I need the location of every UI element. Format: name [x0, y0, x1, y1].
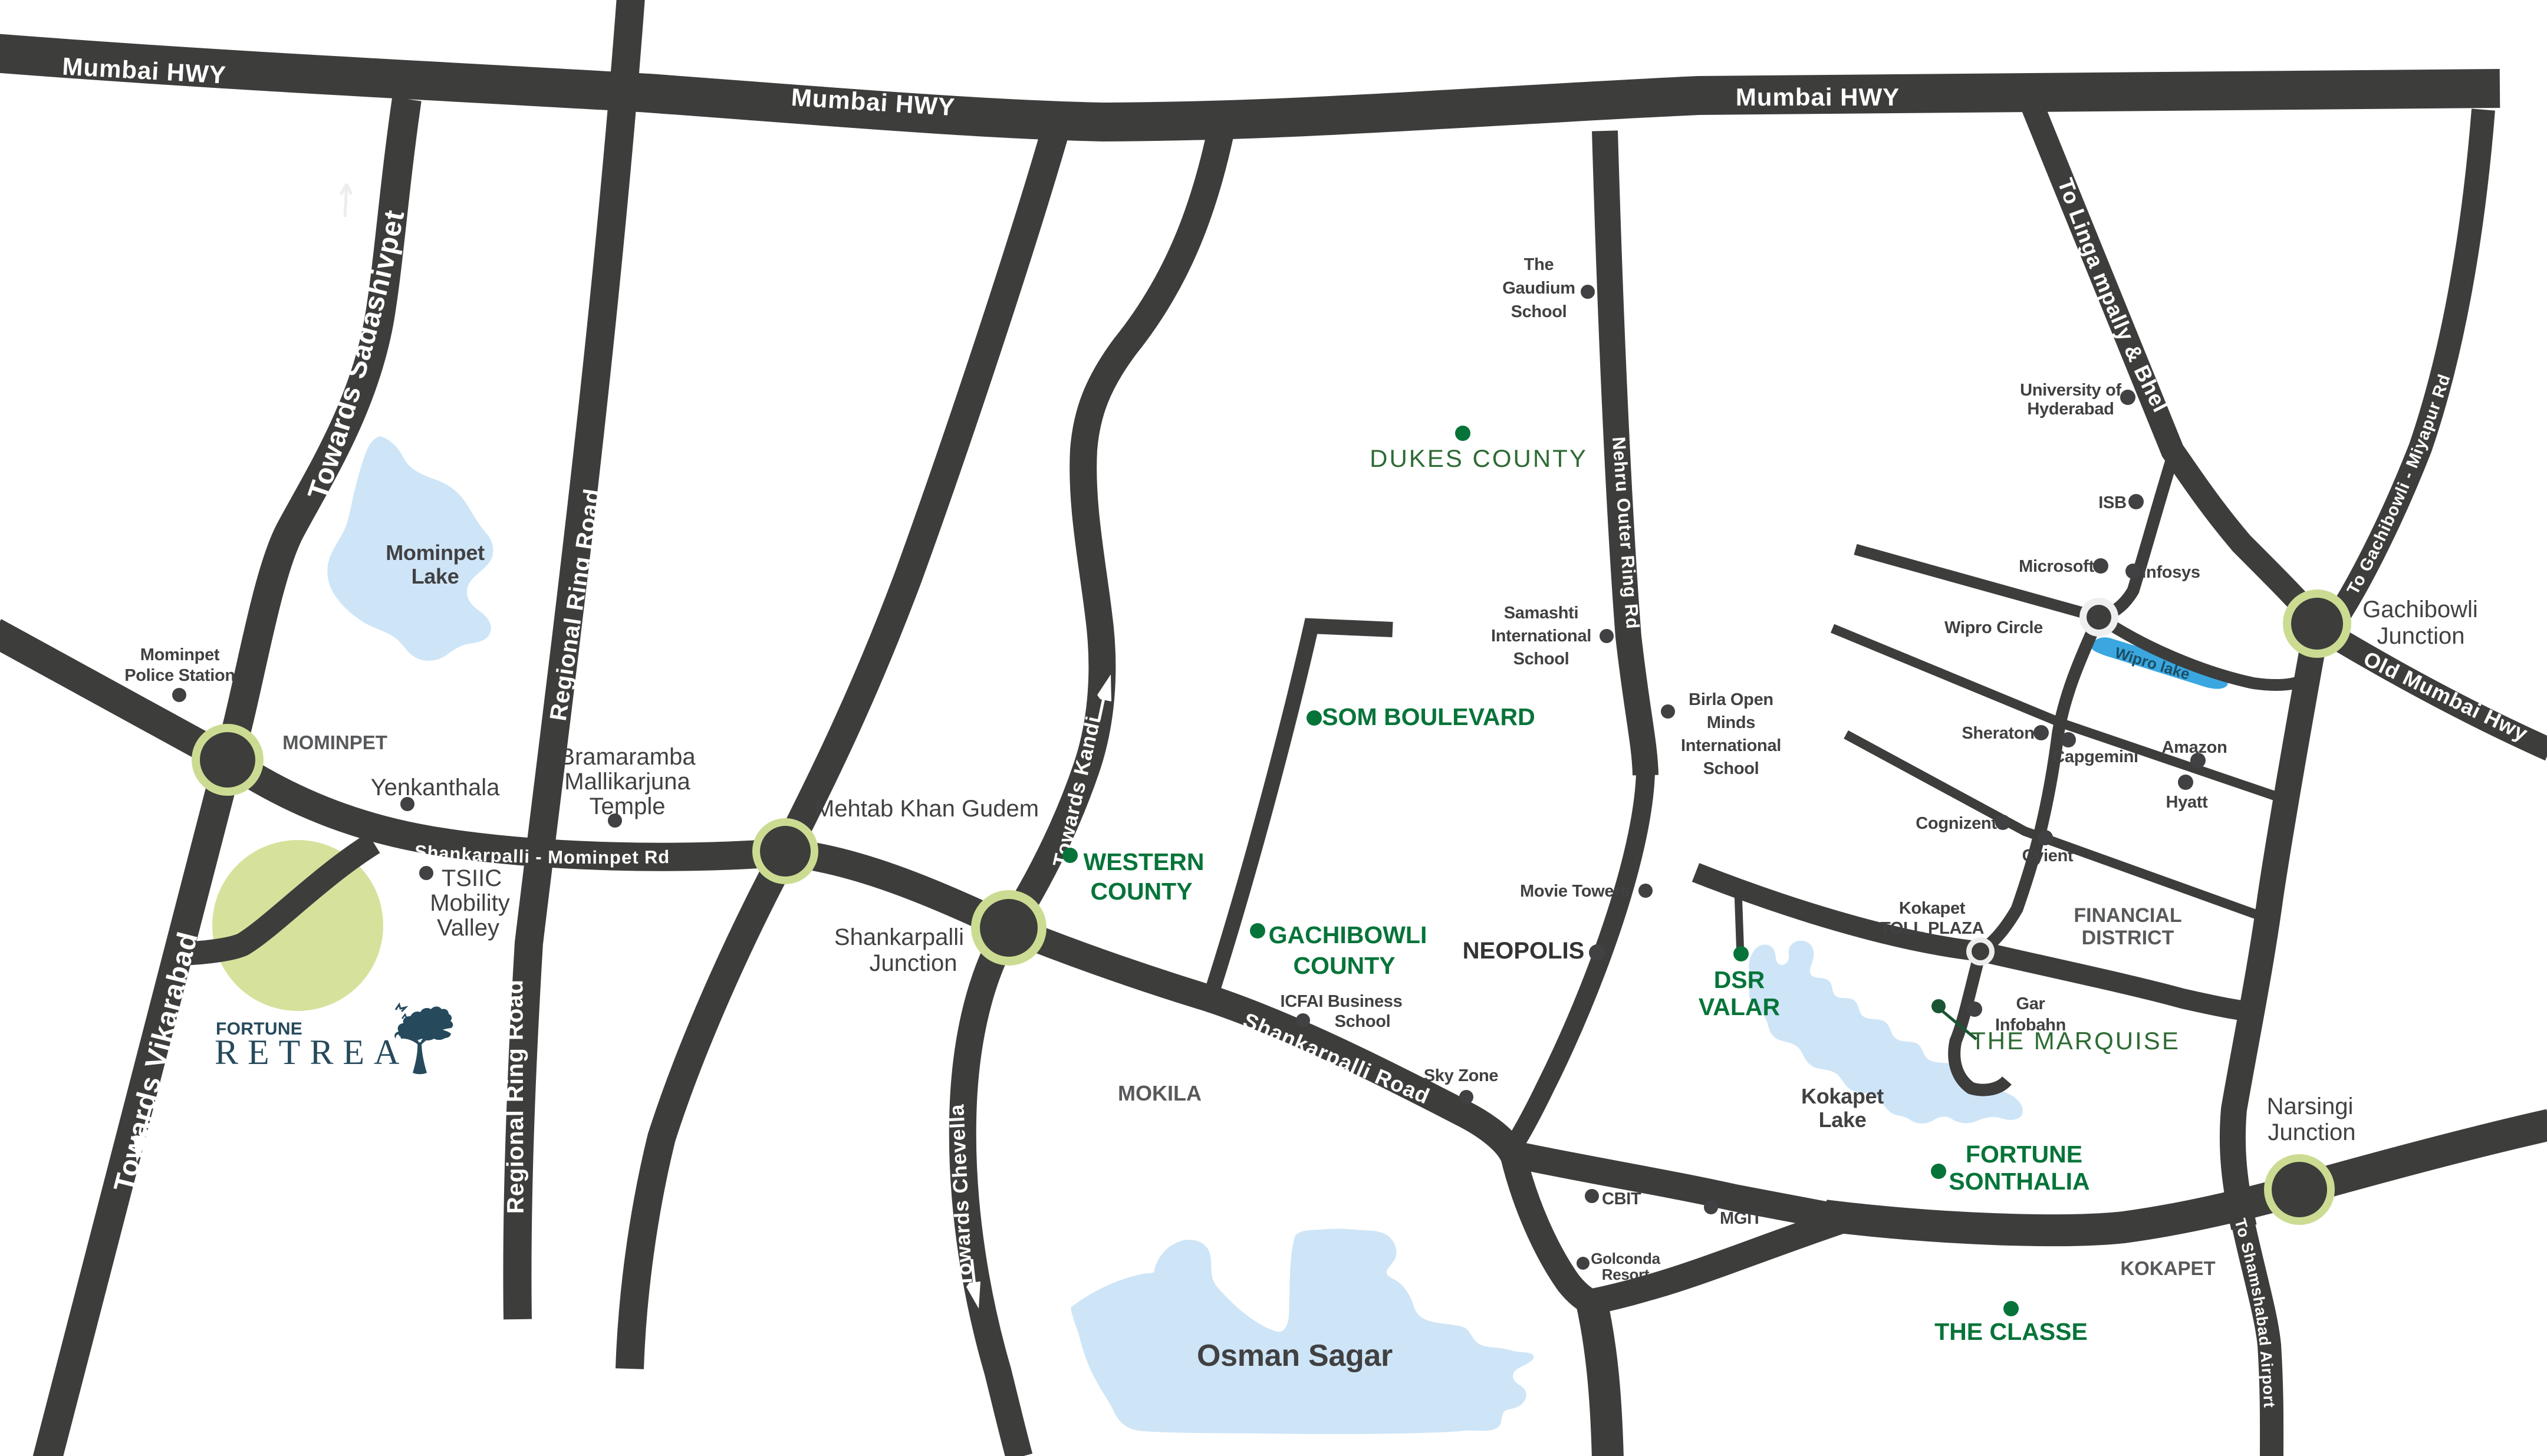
svg-text:Infosys: Infosys: [2141, 563, 2200, 582]
svg-text:TSIIC: TSIIC: [442, 865, 502, 891]
svg-text:Sky Zone: Sky Zone: [1424, 1066, 1499, 1085]
svg-text:MGIT: MGIT: [1720, 1209, 1762, 1228]
svg-text:GACHIBOWLI: GACHIBOWLI: [1269, 921, 1427, 948]
svg-text:Junction: Junction: [2268, 1119, 2356, 1145]
svg-text:FORTUNE: FORTUNE: [1966, 1141, 2082, 1168]
svg-text:COUNTY: COUNTY: [1090, 878, 1192, 905]
svg-text:Kokapet: Kokapet: [1899, 899, 1966, 918]
svg-text:Police Station: Police Station: [124, 666, 235, 685]
svg-text:Yenkanthala: Yenkanthala: [371, 775, 500, 801]
svg-text:School: School: [1513, 650, 1569, 668]
svg-text:Junction: Junction: [2377, 623, 2465, 649]
svg-text:Amazon: Amazon: [2162, 738, 2227, 757]
svg-text:Movie Towers: Movie Towers: [1520, 882, 1630, 901]
svg-text:Lake: Lake: [412, 564, 459, 588]
svg-text:University of: University of: [2020, 381, 2121, 400]
svg-text:School: School: [1511, 302, 1567, 321]
svg-text:VALAR: VALAR: [1699, 993, 1780, 1020]
svg-text:Mobility: Mobility: [430, 890, 510, 916]
svg-text:SOM BOULEVARD: SOM BOULEVARD: [1322, 703, 1535, 730]
svg-text:Valley: Valley: [437, 915, 499, 941]
svg-text:International: International: [1491, 627, 1591, 645]
svg-text:Microsoft: Microsoft: [2019, 557, 2094, 576]
svg-text:NEOPOLIS: NEOPOLIS: [1463, 938, 1585, 964]
svg-text:Lake: Lake: [1819, 1108, 1867, 1132]
svg-text:Osman Sagar: Osman Sagar: [1197, 1339, 1393, 1373]
svg-text:ICFAI Business: ICFAI Business: [1281, 992, 1403, 1011]
svg-text:Bramaramba: Bramaramba: [559, 744, 696, 770]
svg-text:DSR: DSR: [1714, 966, 1765, 993]
svg-text:Capgemini: Capgemini: [2052, 747, 2138, 766]
svg-text:Birla Open: Birla Open: [1689, 690, 1773, 709]
svg-text:DISTRICT: DISTRICT: [2082, 927, 2174, 949]
svg-text:Samashti: Samashti: [1504, 604, 1579, 622]
svg-text:Minds: Minds: [1707, 713, 1755, 732]
svg-text:SONTHALIA: SONTHALIA: [1949, 1168, 2089, 1195]
svg-text:Golconda: Golconda: [1591, 1250, 1660, 1267]
svg-text:Cyient: Cyient: [2022, 846, 2074, 865]
svg-text:Gaudium: Gaudium: [1502, 279, 1575, 298]
svg-text:THE MARQUISE: THE MARQUISE: [1970, 1027, 2180, 1055]
svg-text:FINANCIAL: FINANCIAL: [2074, 904, 2181, 927]
svg-text:Hyatt: Hyatt: [2166, 793, 2208, 812]
svg-text:School: School: [1703, 759, 1759, 778]
svg-text:MOKILA: MOKILA: [1118, 1081, 1202, 1105]
svg-text:The: The: [1524, 255, 1554, 274]
svg-text:Mallikarjuna: Mallikarjuna: [564, 769, 690, 795]
svg-text:Gar: Gar: [2016, 994, 2045, 1013]
svg-text:Junction: Junction: [870, 950, 957, 976]
svg-text:THE CLASSE: THE CLASSE: [1934, 1318, 2088, 1345]
svg-text:DUKES COUNTY: DUKES COUNTY: [1370, 444, 1588, 472]
svg-text:Narsingi: Narsingi: [2267, 1093, 2354, 1119]
svg-text:Sheraton: Sheraton: [1962, 724, 2034, 743]
svg-text:CBIT: CBIT: [1602, 1190, 1641, 1208]
svg-text:Wipro Circle: Wipro Circle: [1944, 618, 2043, 637]
svg-text:WESTERN: WESTERN: [1084, 848, 1205, 875]
svg-text:Temple: Temple: [590, 793, 666, 819]
svg-text:Mumbai HWY: Mumbai HWY: [1736, 83, 1900, 111]
svg-text:International: International: [1681, 736, 1781, 755]
svg-text:Shankarpalli: Shankarpalli: [834, 924, 964, 950]
svg-text:Mominpet: Mominpet: [386, 541, 485, 565]
svg-text:Mominpet: Mominpet: [140, 645, 220, 664]
svg-text:COUNTY: COUNTY: [1293, 952, 1395, 979]
svg-text:MOMINPET: MOMINPET: [282, 732, 387, 753]
svg-text:School: School: [1335, 1012, 1391, 1031]
svg-text:Regional Ring Road: Regional Ring Road: [502, 979, 528, 1214]
svg-text:TOLL PLAZA: TOLL PLAZA: [1880, 919, 1985, 938]
svg-text:Cognizent: Cognizent: [1916, 814, 1997, 833]
svg-text:ISB: ISB: [2098, 493, 2126, 512]
svg-text:Kokapet: Kokapet: [1801, 1084, 1884, 1108]
svg-text:Mehtab Khan Gudem: Mehtab Khan Gudem: [815, 796, 1039, 822]
svg-text:KOKAPET: KOKAPET: [2120, 1257, 2215, 1279]
svg-text:Resort: Resort: [1602, 1266, 1650, 1283]
svg-text:RETREA: RETREA: [215, 1033, 409, 1072]
svg-text:Hyderabad: Hyderabad: [2027, 400, 2114, 419]
svg-text:Gachibowli: Gachibowli: [2362, 597, 2478, 622]
